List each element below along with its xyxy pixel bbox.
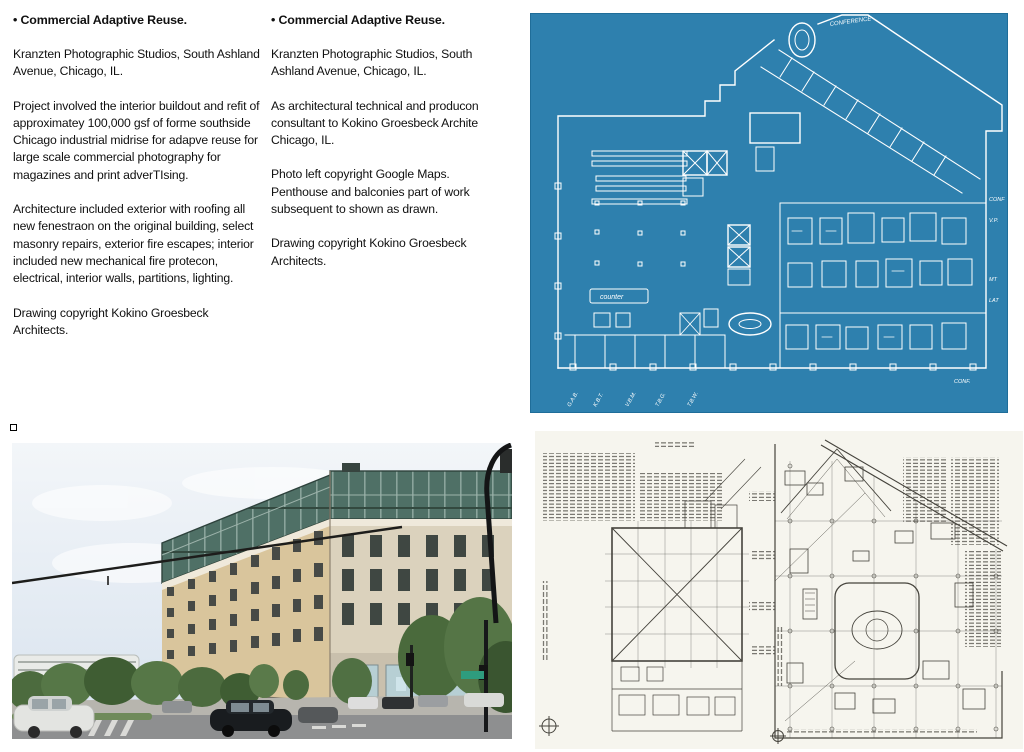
column1-heading-text: Commercial Adaptive Reuse. [21, 13, 187, 27]
blueprint-label-right: CONF [989, 197, 1005, 203]
column1-heading: • Commercial Adaptive Reuse. [13, 12, 263, 29]
blueprint-label-counter: counter [600, 294, 624, 301]
text-column-2: • Commercial Adaptive Reuse. Kranzten Ph… [271, 12, 485, 287]
column2-paragraph: As architectural technical and producon … [271, 98, 485, 150]
blueprint-walls [555, 15, 1002, 370]
vertical-title-text [775, 626, 783, 686]
blueprint-label-right: V.P. [989, 218, 998, 224]
spec-text-block [543, 453, 635, 521]
blueprint-label-right: MT [989, 277, 998, 283]
column2-heading-text: Commercial Adaptive Reuse. [279, 13, 445, 27]
column1-paragraph: Project involved the interior buildout a… [13, 98, 263, 184]
blueprint-panel: CONFERENCE counter CONF V.P. MT LAT CONF… [530, 13, 1008, 413]
spec-text-block [965, 551, 1001, 647]
text-column-1: • Commercial Adaptive Reuse. Kranzten Ph… [13, 12, 263, 356]
column2-paragraph: Kranzten Photographic Studios, South Ash… [271, 46, 485, 81]
blueprint-tick-label: V.B.M. [625, 391, 638, 408]
column2-paragraph: Drawing copyright Kokino Groesbeck Archi… [271, 235, 485, 270]
spec-text-block [903, 457, 947, 523]
column2-paragraph: Photo left copyright Google Maps. Pentho… [271, 166, 485, 218]
stray-square-glyph [10, 424, 17, 431]
column1-paragraph: Architecture included exterior with roof… [13, 201, 263, 287]
bullet-glyph: • [271, 13, 275, 27]
blueprint-tick-label: K.B.T. [593, 392, 606, 408]
column1-paragraph: Kranzten Photographic Studios, South Ash… [13, 46, 263, 81]
street-sign [461, 671, 484, 679]
blueprint-plan-svg: CONFERENCE counter CONF V.P. MT LAT CONF… [530, 13, 1008, 413]
blueprint-tick-label: T.B.G. [655, 392, 668, 408]
vertical-title-text [541, 581, 549, 661]
column2-heading: • Commercial Adaptive Reuse. [271, 12, 485, 29]
drawing-linework [539, 440, 1007, 744]
blueprint-tick-label: T.B.W. [687, 391, 700, 408]
column1-paragraph: Drawing copyright Kokino Groesbeck Archi… [13, 305, 263, 340]
blueprint-label-right: LAT [989, 298, 999, 304]
blueprint-label-conf-room: CONF. [954, 379, 970, 385]
spec-text-block [951, 457, 999, 545]
building-photo-svg [12, 443, 512, 739]
building-photo [12, 443, 512, 739]
spec-text-block [640, 473, 722, 521]
blueprint-tick-label: G.A.B. [567, 391, 580, 408]
bullet-glyph: • [13, 13, 17, 27]
architectural-drawing-panel [535, 431, 1023, 749]
reference-symbol [539, 716, 786, 744]
architectural-drawing-svg [535, 431, 1023, 749]
